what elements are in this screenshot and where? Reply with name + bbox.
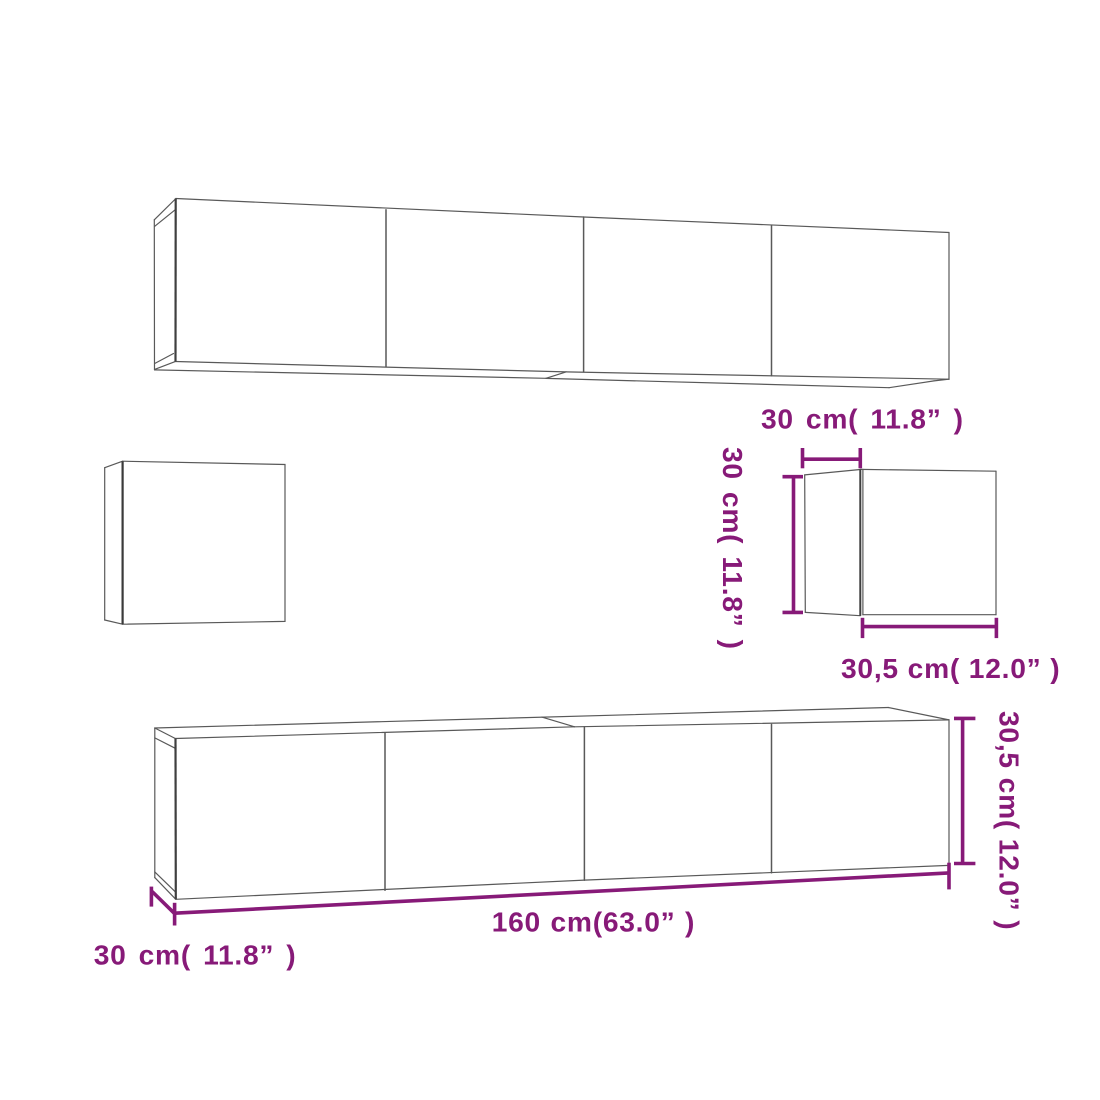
svg-text:30,5 cm( 12.0” ): 30,5 cm( 12.0” ) (841, 652, 1060, 684)
svg-text:30,5 cm( 12.0” ): 30,5 cm( 12.0” ) (994, 711, 1026, 930)
svg-text:30 cm( 11.8” ): 30 cm( 11.8” ) (761, 402, 964, 434)
svg-text:30 cm( 11.8” ): 30 cm( 11.8” ) (717, 447, 749, 650)
svg-text:160 cm(63.0” ): 160 cm(63.0” ) (492, 906, 695, 938)
svg-text:30 cm( 11.8” ): 30 cm( 11.8” ) (94, 939, 297, 971)
